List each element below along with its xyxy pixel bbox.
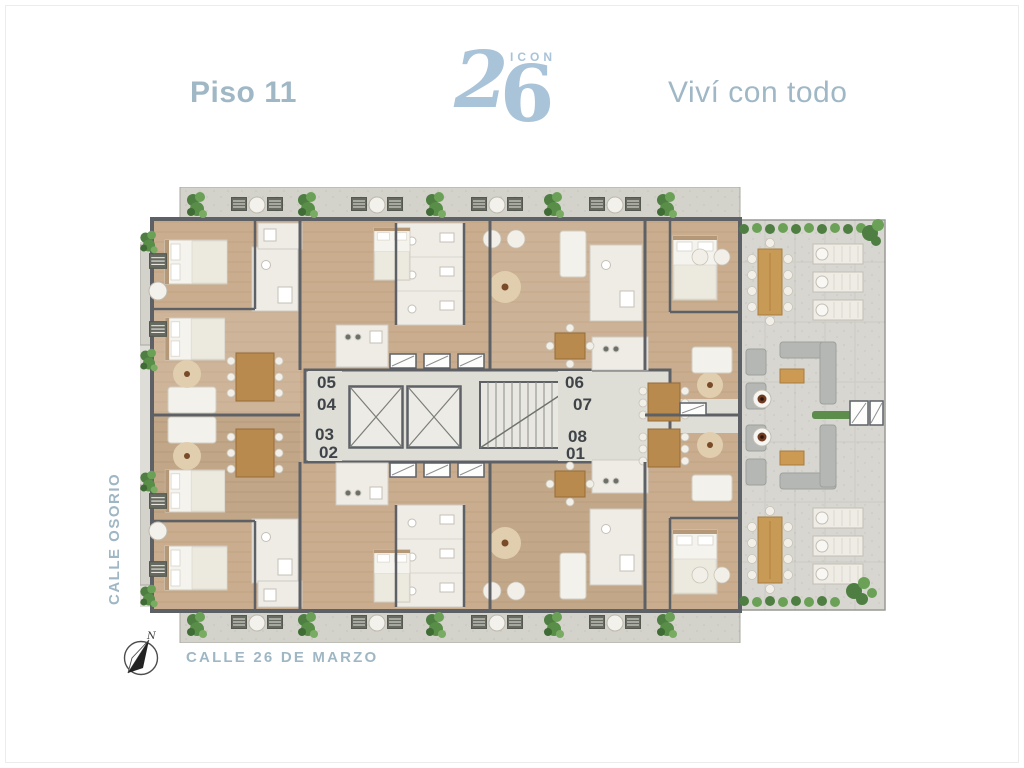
floorplan-graphic — [140, 187, 886, 643]
terrace-loungers-top — [813, 244, 863, 320]
bed — [374, 550, 410, 602]
unit-label-01: 01 — [566, 445, 585, 462]
bed — [165, 240, 227, 284]
bed — [374, 228, 410, 280]
compass-icon: N — [119, 628, 163, 680]
unit-label-03: 03 — [315, 426, 334, 443]
sofa — [168, 417, 216, 443]
sofa — [560, 553, 586, 599]
unit-label-06: 06 — [565, 374, 584, 391]
bed — [165, 546, 227, 590]
dining-table — [639, 429, 689, 467]
street-label-osorio: CALLE OSORIO — [106, 458, 134, 620]
floorplan: 05 04 03 02 06 07 08 01 — [140, 187, 886, 643]
floor-label: Piso 11 — [190, 76, 297, 110]
street-label-26-de-marzo: CALLE 26 DE MARZO — [186, 649, 378, 666]
compass-north-label: N — [146, 631, 157, 642]
elevator — [350, 387, 403, 448]
logo-brand-text: ICON — [510, 50, 556, 64]
bed — [673, 530, 717, 594]
logo-digit-6: 6 — [500, 56, 554, 134]
bed — [673, 236, 717, 300]
bed — [165, 318, 224, 360]
terrace-loungers-bottom — [813, 508, 863, 584]
sofa — [692, 347, 732, 373]
sofa — [692, 475, 732, 501]
unit-label-07: 07 — [573, 396, 592, 413]
unit-label-02: 02 — [319, 444, 338, 461]
compass-north-indicator: N — [119, 628, 163, 680]
bed — [165, 470, 224, 512]
sofa — [168, 387, 216, 413]
unit-label-08: 08 — [568, 428, 587, 445]
terrace — [735, 220, 885, 610]
sofa — [560, 231, 586, 277]
brand-logo: 2 6 ICON — [448, 34, 588, 144]
terrace-planter — [812, 411, 852, 419]
unit-label-05: 05 — [317, 374, 336, 391]
elevator — [408, 387, 461, 448]
unit-label-04: 04 — [317, 396, 336, 413]
tagline: Viví con todo — [668, 76, 847, 110]
